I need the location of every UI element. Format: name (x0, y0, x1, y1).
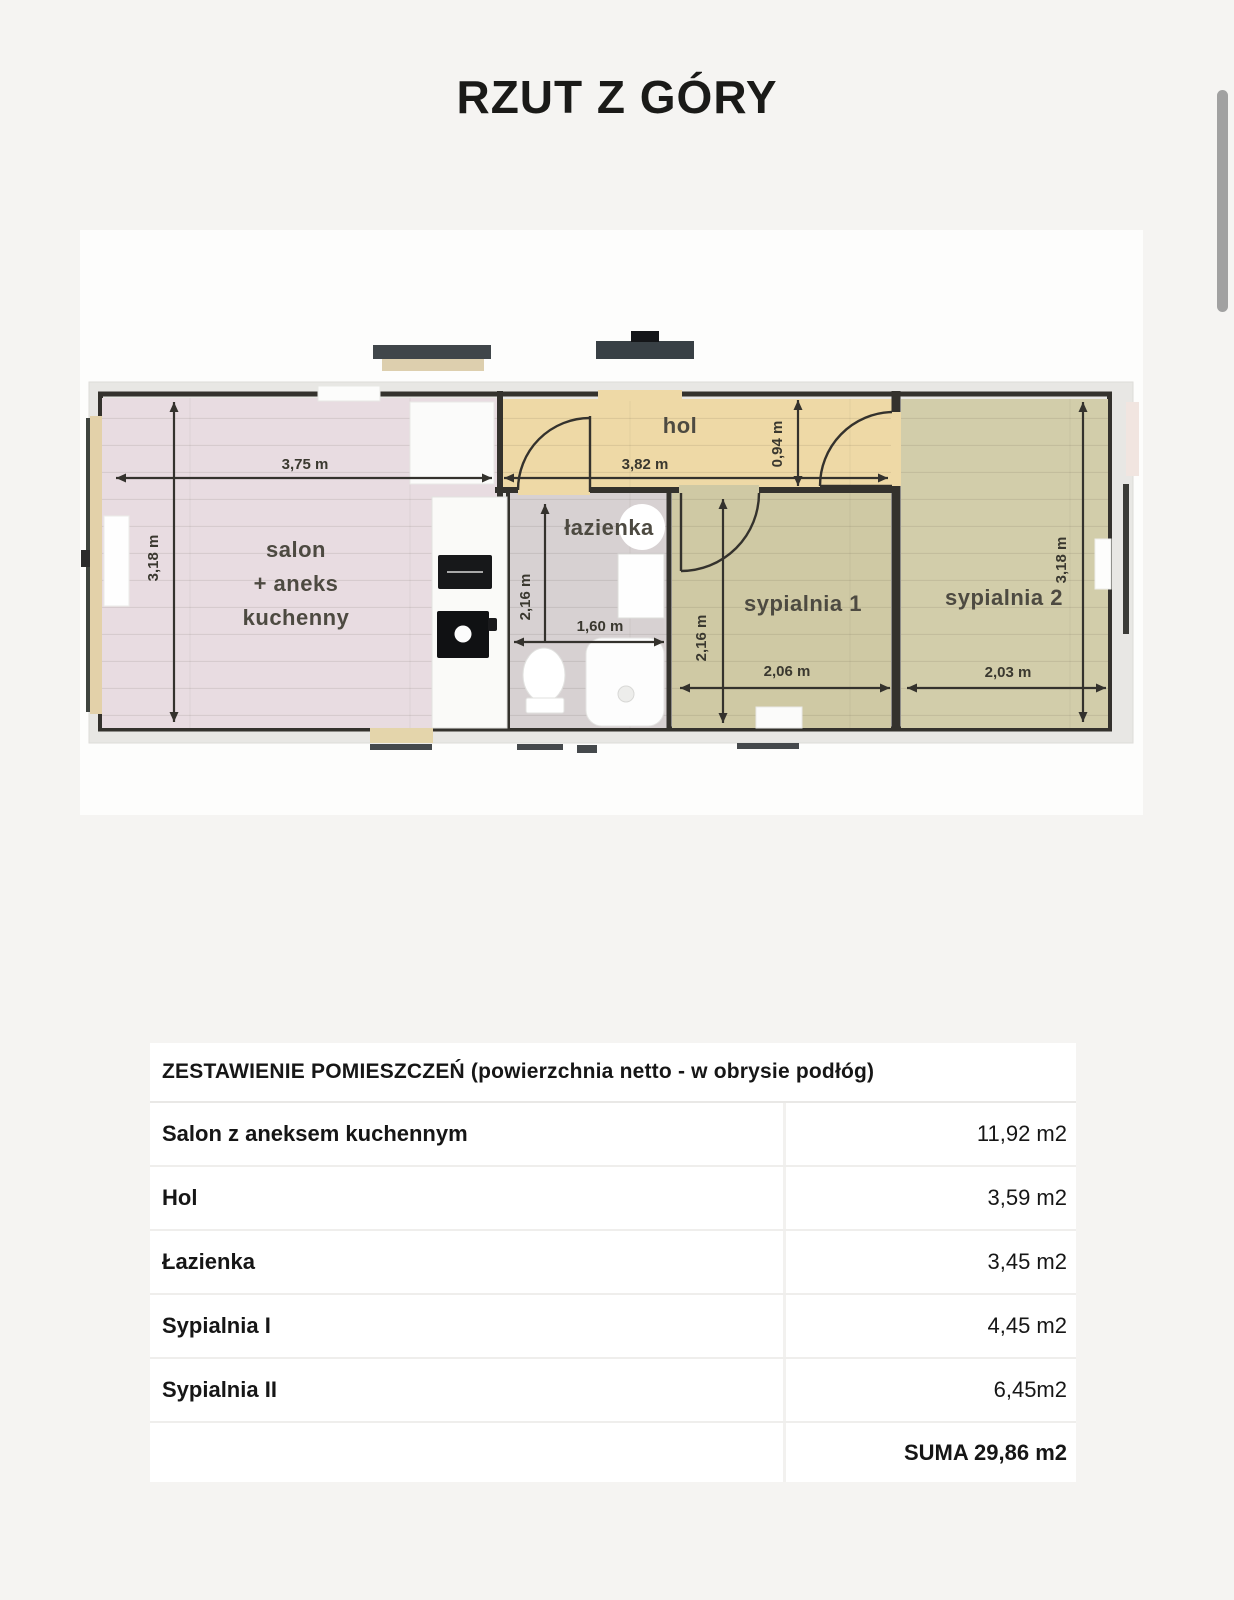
table-row: Hol 3,59 m2 (150, 1167, 1076, 1231)
salon-label-line2: + aneks (254, 571, 339, 596)
room-area: 4,45 m2 (786, 1295, 1076, 1357)
shower-tray (586, 638, 664, 726)
lazienka-label: łazienka (564, 515, 654, 540)
salon-label-line1: salon (266, 537, 326, 562)
toilet (523, 648, 565, 702)
room-area: 6,45m2 (786, 1359, 1076, 1421)
entry-steps-left (373, 345, 491, 359)
salon-left-window-sill (104, 516, 129, 606)
bottom-window-mark-3 (577, 745, 597, 753)
room-area: 3,45 m2 (786, 1231, 1076, 1293)
sypialnia1-door-opening (679, 485, 759, 495)
salon-width-label: 3,75 m (282, 456, 329, 473)
sypialnia2-height-label: 3,18 m (1053, 537, 1070, 584)
total-area: SUMA 29,86 m2 (786, 1423, 1076, 1482)
sypialnia1-width-label: 2,06 m (764, 663, 811, 680)
room-area: 3,59 m2 (786, 1167, 1076, 1229)
entry-doormat (631, 331, 659, 342)
sypialnia2-door-opening (891, 412, 901, 486)
entry-steps (596, 341, 694, 359)
room-name: Hol (150, 1167, 786, 1229)
hol-label: hol (663, 413, 698, 438)
table-row: Salon z aneksem kuchennym 11,92 m2 (150, 1103, 1076, 1167)
sypialnia1-height-label: 2,16 m (693, 615, 710, 662)
wardrobe (410, 402, 494, 484)
bottom-window-mark-4 (737, 743, 799, 749)
total-empty-cell (150, 1423, 786, 1482)
left-door-handle (81, 550, 90, 567)
washbasin-cabinet (618, 554, 664, 618)
table-header: ZESTAWIENIE POMIESZCZEŃ (powierzchnia ne… (150, 1043, 1076, 1103)
salon-label-line3: kuchenny (243, 605, 350, 630)
table-row: Sypialnia I 4,45 m2 (150, 1295, 1076, 1359)
room-name: Sypialnia II (150, 1359, 786, 1421)
table-total-row: SUMA 29,86 m2 (150, 1423, 1076, 1482)
left-terrace-strip (90, 416, 102, 714)
sypialnia2-label: sypialnia 2 (945, 585, 1063, 610)
kitchen-faucet (488, 618, 497, 631)
bottom-terrace-strip (370, 728, 433, 743)
sypialnia2-window-sill (1095, 539, 1111, 589)
right-window-strip (1123, 484, 1129, 634)
bottom-window-mark-2 (517, 744, 563, 750)
sypialnia2-width-label: 2,03 m (985, 664, 1032, 681)
salon-top-window (318, 386, 380, 401)
entry-opening (598, 390, 682, 401)
sypialnia1-label: sypialnia 1 (744, 591, 862, 616)
hol-height-label: 0,94 m (769, 421, 786, 468)
room-name: Salon z aneksem kuchennym (150, 1103, 786, 1165)
area-table: ZESTAWIENIE POMIESZCZEŃ (powierzchnia ne… (150, 1043, 1076, 1482)
table-row: Łazienka 3,45 m2 (150, 1231, 1076, 1295)
shower-drain (618, 686, 634, 702)
sypialnia1-bottom-sill (756, 707, 802, 728)
entry-landing (382, 359, 484, 371)
table-row: Sypialnia II 6,45m2 (150, 1359, 1076, 1423)
room-name: Łazienka (150, 1231, 786, 1293)
scrollbar-thumb[interactable] (1217, 90, 1228, 312)
right-window-sill (1126, 402, 1139, 476)
room-name: Sypialnia I (150, 1295, 786, 1357)
page-title: RZUT Z GÓRY (0, 70, 1234, 124)
salon-height-label: 3,18 m (145, 535, 162, 582)
bottom-window-mark-1 (370, 744, 432, 750)
floorplan-svg: 3,75 m 3,18 m 3,82 m 0,94 m 2,16 m 1,60 … (80, 230, 1143, 815)
hol-width-label: 3,82 m (622, 456, 669, 473)
lazienka-door-opening (518, 485, 590, 495)
toilet-tank (526, 698, 564, 713)
kitchen-sink-drain (455, 626, 472, 643)
lazienka-height-label: 2,16 m (517, 574, 534, 621)
room-area: 11,92 m2 (786, 1103, 1076, 1165)
floorplan-image: 3,75 m 3,18 m 3,82 m 0,94 m 2,16 m 1,60 … (80, 230, 1143, 815)
lazienka-width-label: 1,60 m (577, 618, 624, 635)
